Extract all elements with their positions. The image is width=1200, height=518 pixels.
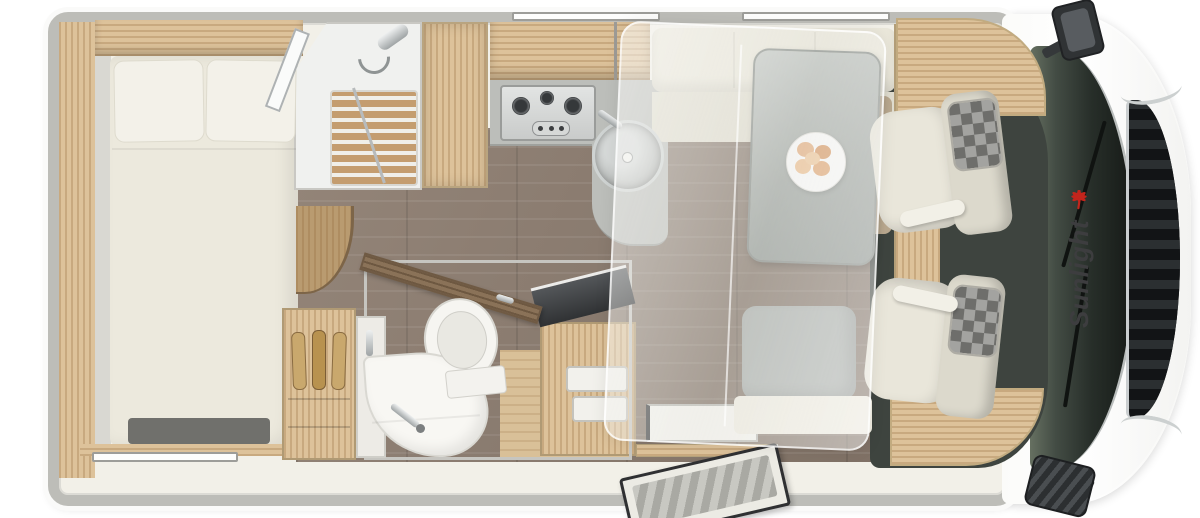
pillow <box>113 59 204 143</box>
burner-icon <box>540 91 554 105</box>
seat-headrest <box>947 284 1004 359</box>
window-marker <box>92 452 238 462</box>
wardrobe <box>422 22 488 188</box>
blanket-seam <box>112 148 296 150</box>
bottle-cabinet <box>282 308 356 460</box>
overlay-mattress-seam <box>724 44 743 426</box>
bed-side-panel <box>95 36 111 450</box>
cab-seat-driver <box>852 255 1018 428</box>
bedside-mat <box>128 418 270 444</box>
drop-down-bed-overlay <box>603 20 887 451</box>
gas-hob <box>500 85 596 141</box>
burner-icon <box>512 97 530 115</box>
hob-knobs <box>532 121 570 136</box>
motorhome-floorplan: Sunlight <box>0 0 1200 518</box>
mirror-glass <box>1060 7 1097 53</box>
palm-tree-icon <box>1068 190 1090 212</box>
door-handle-icon <box>366 330 373 356</box>
sink-drain <box>416 424 425 433</box>
burner-icon <box>564 97 582 115</box>
cabinet-divider <box>614 22 617 80</box>
brand-logo-text: Sunlight <box>1064 220 1095 328</box>
shower-floor-slats <box>330 90 418 186</box>
window-marker <box>742 12 890 21</box>
brand-logo: Sunlight <box>1066 152 1092 328</box>
seat-headrest <box>946 97 1004 173</box>
headboard-shelf <box>95 20 303 56</box>
window-marker <box>512 12 660 21</box>
rear-shelf <box>59 22 95 478</box>
